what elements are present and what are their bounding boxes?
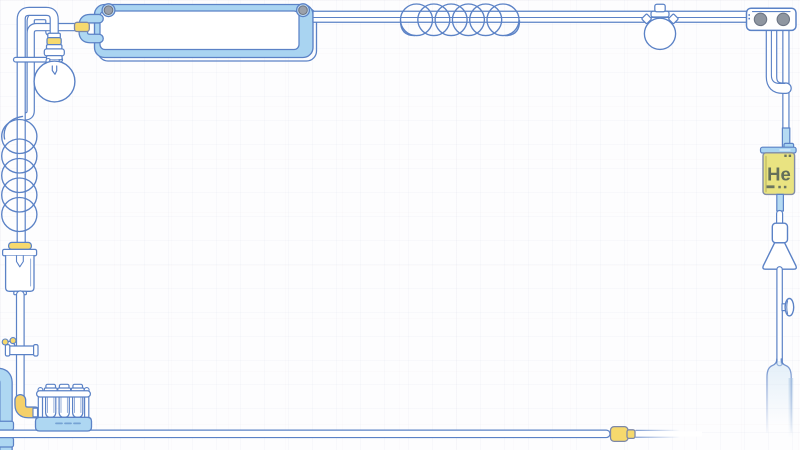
svg-text:He: He xyxy=(767,163,791,184)
